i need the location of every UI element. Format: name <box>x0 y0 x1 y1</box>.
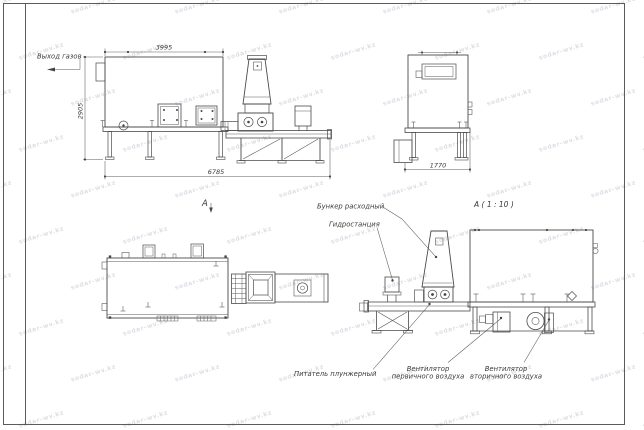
feeder-plan <box>275 274 328 302</box>
deck <box>103 127 228 132</box>
anchor-posts-front <box>412 122 469 128</box>
legs-front <box>410 133 469 161</box>
aux-box-side <box>295 106 311 126</box>
dim-front-text: 1770 <box>430 162 447 170</box>
technical-drawing: 3995 2905 6785 Выход газов <box>0 0 644 430</box>
dim-top-text: 3995 <box>156 44 173 52</box>
anchor-posts-section <box>474 294 570 302</box>
dimension-left: 2905 <box>77 56 104 161</box>
secondary-air-fan <box>527 312 554 332</box>
dim-left-text: 2905 <box>77 103 85 120</box>
deck-front <box>405 128 470 133</box>
sheet-frame <box>4 4 625 425</box>
view-a-label: A <box>201 199 208 209</box>
callout-leaders <box>373 207 550 370</box>
gas-outlet-label: Выход газов <box>37 53 82 61</box>
gas-outlet-callout: Выход газов <box>37 53 82 72</box>
furnace-plan <box>107 258 228 318</box>
drawing-sheet: sodar-wv.kzsodar-wv.kzsodar-wv.kzsodar-w… <box>0 0 644 430</box>
deck-valve <box>119 121 128 130</box>
callout-texts: Бункер расходный Гидростанция Питатель п… <box>294 203 542 381</box>
hopper-plan <box>246 272 275 303</box>
view-a-arrow <box>209 208 213 214</box>
hopper-section <box>422 231 454 287</box>
dim-bottom-text: 6785 <box>208 168 225 176</box>
support-frame <box>106 132 226 160</box>
front-view: 1770 <box>394 51 472 173</box>
plan-view <box>102 244 328 321</box>
plan-hatch-2 <box>191 244 204 258</box>
plan-bottom-louvers <box>157 316 216 321</box>
furnace-front <box>408 55 468 128</box>
conveyor-truss-side <box>237 138 324 163</box>
furnace-body <box>105 57 223 127</box>
diamond-fitting <box>568 292 577 301</box>
hydro-label: Гидростанция <box>329 221 380 229</box>
plunger-feeder <box>415 287 454 302</box>
conveyor-section <box>360 301 471 334</box>
deck-hatch-2 <box>196 106 217 125</box>
section-title: A ( 1 : 10 ) <box>473 200 514 209</box>
anchor-posts <box>101 121 189 128</box>
gas-flow-arrow <box>47 68 55 72</box>
fan-secondary-label-line2: вторичного воздуха <box>470 373 542 381</box>
side-elevation-view: 3995 2905 6785 Выход газов <box>37 44 332 180</box>
dimension-front-width: 1770 <box>404 133 471 173</box>
hopper-label: Бункер расходный <box>317 203 385 211</box>
primary-air-fan <box>480 312 511 332</box>
feeder-flange-plan <box>232 274 247 304</box>
feeder-assembly-side <box>221 56 332 164</box>
fan-primary-label-line2: первичного воздуха <box>392 373 465 381</box>
view-a-marker: A <box>201 199 213 213</box>
plan-anchor-marks <box>121 261 225 311</box>
feeder-label: Питатель плунжерный <box>294 370 377 378</box>
section-view: A ( 1 : 10 ) <box>360 200 599 370</box>
dimension-top: 3995 <box>104 44 224 57</box>
gas-outlet-stub <box>96 63 105 81</box>
plan-hatch-1 <box>143 245 155 258</box>
deck-hatch-1 <box>158 104 181 127</box>
